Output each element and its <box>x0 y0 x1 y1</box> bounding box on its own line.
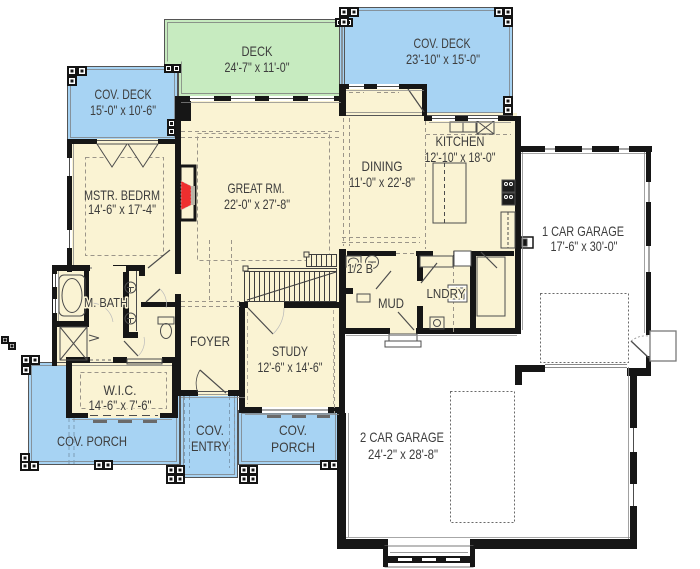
svg-text:MUD: MUD <box>378 295 404 311</box>
svg-text:DECK: DECK <box>242 43 274 59</box>
svg-text:COV. DECK: COV. DECK <box>414 35 471 51</box>
svg-text:W.I.C.: W.I.C. <box>104 382 137 398</box>
svg-text:COV.: COV. <box>279 422 307 438</box>
svg-text:22'-0" x 27'-8": 22'-0" x 27'-8" <box>224 197 290 212</box>
svg-text:COV.: COV. <box>196 422 224 438</box>
svg-text:15'-0" x 10'-6": 15'-0" x 10'-6" <box>90 103 156 118</box>
svg-text:17'-6" x 30'-0": 17'-6" x 30'-0" <box>551 239 618 254</box>
svg-text:COV. PORCH: COV. PORCH <box>57 433 127 449</box>
svg-text:12'-6" x 14'-6": 12'-6" x 14'-6" <box>258 360 323 375</box>
svg-text:LNDRY: LNDRY <box>427 286 466 301</box>
svg-text:1 CAR GARAGE: 1 CAR GARAGE <box>542 223 624 239</box>
svg-text:24'-7" x 11'-0": 24'-7" x 11'-0" <box>225 60 290 75</box>
svg-text:1/2 B: 1/2 B <box>347 261 373 276</box>
svg-text:DINING: DINING <box>362 158 403 174</box>
svg-text:ENTRY: ENTRY <box>191 438 230 454</box>
svg-text:12'-10" x 18'-0": 12'-10" x 18'-0" <box>425 150 496 165</box>
svg-text:2 CAR GARAGE: 2 CAR GARAGE <box>360 429 444 445</box>
svg-text:PORCH: PORCH <box>271 439 315 455</box>
svg-text:GREAT RM.: GREAT RM. <box>228 180 285 196</box>
svg-text:KITCHEN: KITCHEN <box>436 133 485 149</box>
svg-text:14'-6" x 17'-4": 14'-6" x 17'-4" <box>88 202 156 217</box>
svg-text:COV. DECK: COV. DECK <box>95 86 152 102</box>
svg-text:11'-0" x 22'-8": 11'-0" x 22'-8" <box>349 175 415 190</box>
svg-text:24'-2" x 28'-8": 24'-2" x 28'-8" <box>368 447 438 462</box>
svg-text:FOYER: FOYER <box>190 333 230 349</box>
svg-text:23'-10" x 15'-0": 23'-10" x 15'-0" <box>406 52 480 67</box>
svg-text:STUDY: STUDY <box>272 343 308 359</box>
svg-text:14'-6" x 7'-6": 14'-6" x 7'-6" <box>89 398 152 413</box>
svg-text:MSTR. BEDRM: MSTR. BEDRM <box>84 187 160 203</box>
svg-text:M. BATH: M. BATH <box>84 295 128 310</box>
